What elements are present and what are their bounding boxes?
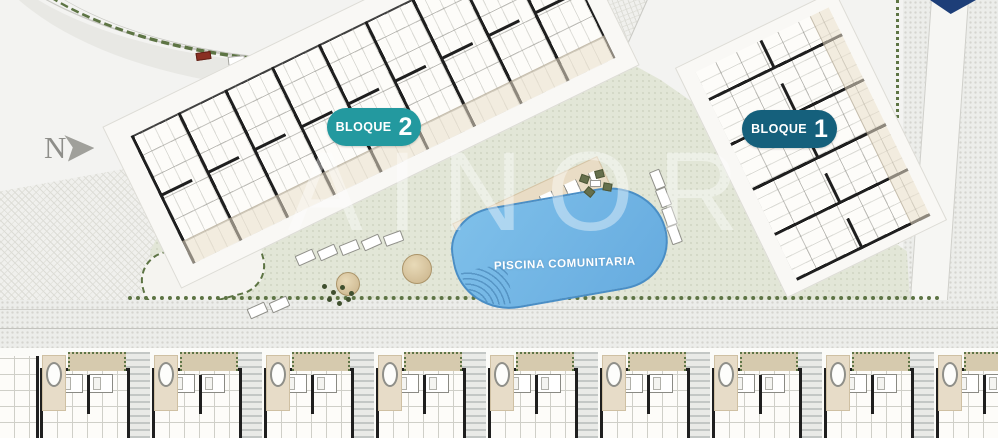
entry-porch bbox=[714, 355, 738, 411]
townhouse-unit bbox=[598, 352, 710, 438]
entry-porch bbox=[42, 355, 66, 411]
townhouse-unit bbox=[710, 352, 822, 438]
block-1-label: BLOQUE bbox=[751, 122, 807, 136]
shrub bbox=[346, 297, 351, 302]
entry-porch bbox=[154, 355, 178, 411]
shrub bbox=[340, 285, 345, 290]
bed bbox=[985, 374, 998, 393]
terrace-pergola bbox=[740, 352, 798, 371]
tree bbox=[336, 272, 360, 296]
bed bbox=[425, 374, 449, 393]
townhouse-unit bbox=[262, 352, 374, 438]
villas-row bbox=[38, 352, 998, 438]
entry-porch bbox=[490, 355, 514, 411]
bed bbox=[201, 374, 225, 393]
terrace-pergola bbox=[852, 352, 910, 371]
entry-porch bbox=[266, 355, 290, 411]
bed bbox=[649, 374, 673, 393]
plunge-tub bbox=[942, 362, 958, 387]
entry-porch bbox=[826, 355, 850, 411]
townhouse-unit bbox=[934, 352, 998, 438]
plunge-tub bbox=[382, 362, 398, 387]
block-2-label: BLOQUE bbox=[336, 120, 392, 134]
garden-table bbox=[590, 180, 601, 187]
terrace-pergola bbox=[180, 352, 238, 371]
shrub bbox=[322, 284, 327, 289]
terrace-pergola bbox=[68, 352, 126, 371]
entry-porch bbox=[938, 355, 962, 411]
bed bbox=[313, 374, 337, 393]
plunge-tub bbox=[606, 362, 622, 387]
plunge-tub bbox=[158, 362, 174, 387]
entry-porch bbox=[378, 355, 402, 411]
plunge-tub bbox=[46, 362, 62, 387]
townhouse-unit bbox=[150, 352, 262, 438]
townhouse-unit bbox=[822, 352, 934, 438]
bed bbox=[537, 374, 561, 393]
bottom-road-edge-line bbox=[0, 309, 998, 310]
terrace-pergola bbox=[292, 352, 350, 371]
townhouse-unit bbox=[38, 352, 150, 438]
site-plan-canvas: PISCINA COMUNITARIA bbox=[0, 0, 998, 438]
bed bbox=[89, 374, 113, 393]
townhouse-partial bbox=[0, 356, 39, 438]
block-2-number: 2 bbox=[398, 115, 412, 140]
townhouse-unit bbox=[486, 352, 598, 438]
block-1-badge: BLOQUE 1 bbox=[742, 110, 837, 148]
shrub bbox=[331, 290, 336, 295]
tree bbox=[402, 254, 432, 284]
terrace-pergola bbox=[404, 352, 462, 371]
block-2-badge: BLOQUE 2 bbox=[327, 108, 421, 146]
block-1-number: 1 bbox=[814, 117, 828, 142]
townhouse-unit bbox=[374, 352, 486, 438]
plunge-tub bbox=[718, 362, 734, 387]
garden-table bbox=[602, 182, 612, 191]
north-letter: N bbox=[44, 132, 66, 163]
terrace-pergola bbox=[516, 352, 574, 371]
shrub bbox=[337, 301, 342, 306]
north-arrow-icon bbox=[64, 134, 94, 162]
north-indicator: N bbox=[44, 132, 94, 163]
terrace-pergola bbox=[964, 352, 998, 371]
bottom-road-center-line bbox=[0, 328, 998, 329]
plunge-tub bbox=[494, 362, 510, 387]
bed bbox=[761, 374, 785, 393]
bed bbox=[873, 374, 897, 393]
shrub bbox=[349, 291, 354, 296]
plunge-tub bbox=[270, 362, 286, 387]
entry-porch bbox=[602, 355, 626, 411]
plunge-tub bbox=[830, 362, 846, 387]
shrub bbox=[327, 297, 332, 302]
terrace-pergola bbox=[628, 352, 686, 371]
